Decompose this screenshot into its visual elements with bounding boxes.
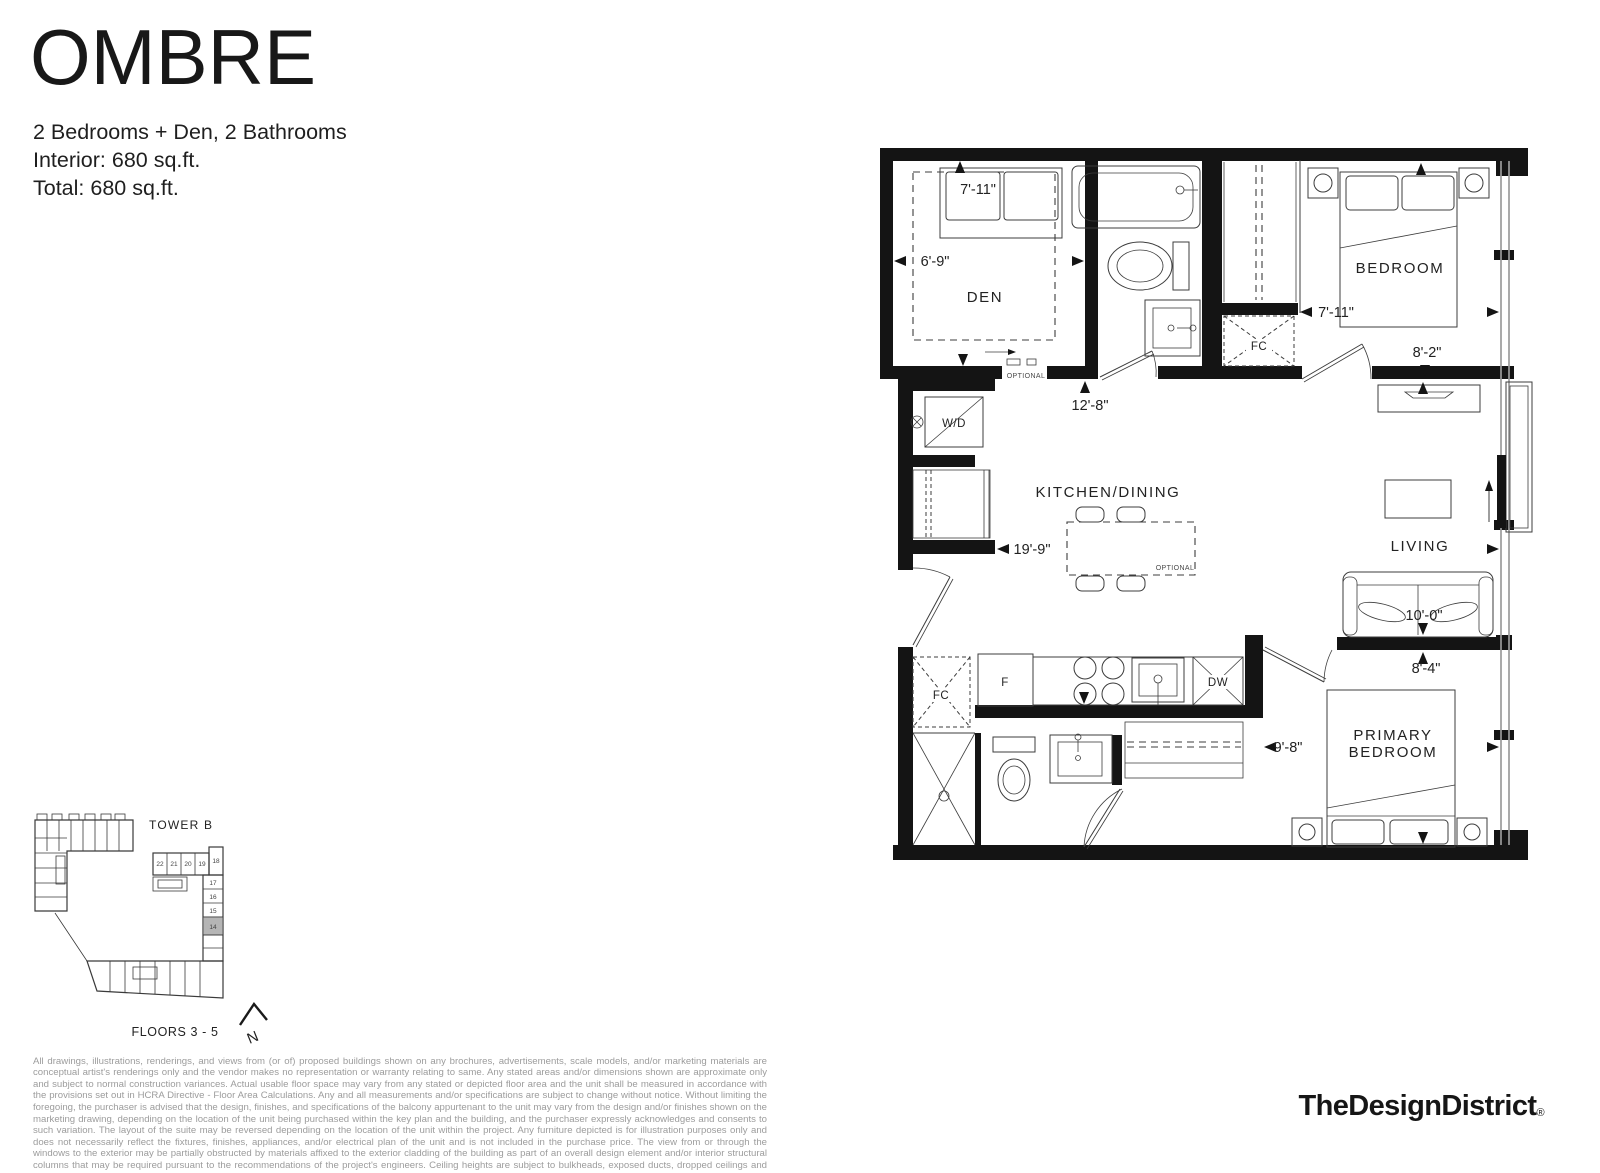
floorplan-sheet: OMBRE 2 Bedrooms + Den, 2 Bathrooms Inte…	[0, 0, 1600, 1173]
dim-bedroom-width: 7'-11"	[1318, 305, 1354, 321]
fridge-label: F	[1001, 677, 1009, 689]
optional-label-dining: OPTIONAL	[1156, 565, 1195, 572]
entry-door	[913, 568, 953, 647]
primary-bedroom-label-2: BEDROOM	[1349, 744, 1438, 761]
unit-16: 16	[209, 894, 217, 901]
keyplan: 22 21 20 19 18 17 16 15 14 TOWER B FLOOR…	[25, 793, 305, 1053]
tower-label: TOWER B	[149, 818, 213, 832]
unit-21: 21	[170, 861, 178, 868]
linen-closet	[1125, 722, 1243, 778]
dim-bath-corridor: 12'-8"	[1072, 398, 1109, 414]
bedroom-bed	[1340, 172, 1457, 327]
kitchen-sink-icon	[1132, 658, 1184, 705]
doors	[913, 344, 1371, 849]
bedroom-door	[1302, 344, 1371, 382]
dim-den-depth: 7'-11"	[960, 182, 996, 198]
unit-19: 19	[198, 861, 206, 868]
dim-bedroom-depth: 8'-2"	[1413, 345, 1442, 361]
primary-door	[1263, 647, 1332, 682]
coat-closet	[913, 470, 990, 538]
den-label: DEN	[967, 289, 1003, 306]
brand-logo: TheDesignDistrict®	[1299, 1090, 1544, 1123]
coffee-table	[1385, 480, 1451, 518]
toilet2-icon	[993, 737, 1035, 801]
den-sofa	[940, 168, 1062, 238]
dim-primary-depth: 8'-4"	[1412, 661, 1441, 677]
dishwasher-label: DW	[1208, 677, 1228, 689]
unit-15: 15	[209, 908, 217, 915]
living-label: LIVING	[1391, 538, 1450, 555]
spec-bedrooms: 2 Bedrooms + Den, 2 Bathrooms	[33, 118, 347, 146]
north-arrow-icon: N	[240, 1004, 267, 1048]
spec-interior-area: Interior: 680 sq.ft.	[33, 146, 347, 174]
unit-18: 18	[212, 858, 220, 865]
unit-14: 14	[209, 924, 217, 931]
spec-total-area: Total: 680 sq.ft.	[33, 174, 347, 202]
optional-label-den: OPTIONAL	[1007, 373, 1046, 380]
washer-dryer-label: W/D	[942, 418, 966, 430]
registered-trademark-icon: ®	[1536, 1107, 1544, 1119]
den-optional-door	[985, 349, 1036, 365]
unit-17: 17	[209, 880, 217, 887]
bedroom-label: BEDROOM	[1356, 260, 1445, 277]
shower-icon	[913, 733, 975, 845]
dim-suite-width: 19'-9"	[1014, 542, 1051, 558]
floors-label: FLOORS 3 - 5	[131, 1025, 218, 1039]
unit-20: 20	[184, 861, 192, 868]
kitchen-dining-label: KITCHEN/DINING	[1036, 484, 1181, 501]
primary-bed	[1327, 690, 1455, 847]
bath-sink-icon	[1145, 300, 1200, 356]
unit-specs: 2 Bedrooms + Den, 2 Bathrooms Interior: …	[33, 118, 347, 202]
keyplan-building	[35, 814, 223, 998]
primary-bedroom-label-1: PRIMARY	[1353, 727, 1432, 744]
unit-22: 22	[156, 861, 164, 868]
brand-logo-text: TheDesignDistrict	[1299, 1090, 1537, 1122]
bath2-door	[1084, 789, 1123, 849]
legal-disclaimer: All drawings, illustrations, renderings,…	[33, 1056, 767, 1173]
fan-coil-label-kitchen: FC	[933, 690, 949, 702]
page-title: OMBRE	[30, 12, 316, 103]
toilet-icon	[1108, 242, 1189, 290]
sofa	[1343, 572, 1493, 637]
tv-console	[1378, 385, 1480, 412]
north-label: N	[245, 1028, 261, 1048]
dim-primary-width: 9'-8"	[1274, 740, 1303, 756]
fan-coil-label-upper: FC	[1251, 341, 1267, 353]
plan-labels: DEN BEDROOM KITCHEN/DINING LIVING PRIMAR…	[921, 182, 1450, 761]
dining-chairs	[1076, 507, 1145, 591]
floorplan-drawing: DEN BEDROOM KITCHEN/DINING LIVING PRIMAR…	[860, 130, 1550, 875]
bath2-sink-icon	[1050, 734, 1112, 783]
dim-den-width: 6'-9"	[921, 254, 950, 270]
dim-living-depth: 10'-0"	[1406, 608, 1443, 624]
bath1-door	[1100, 351, 1156, 380]
